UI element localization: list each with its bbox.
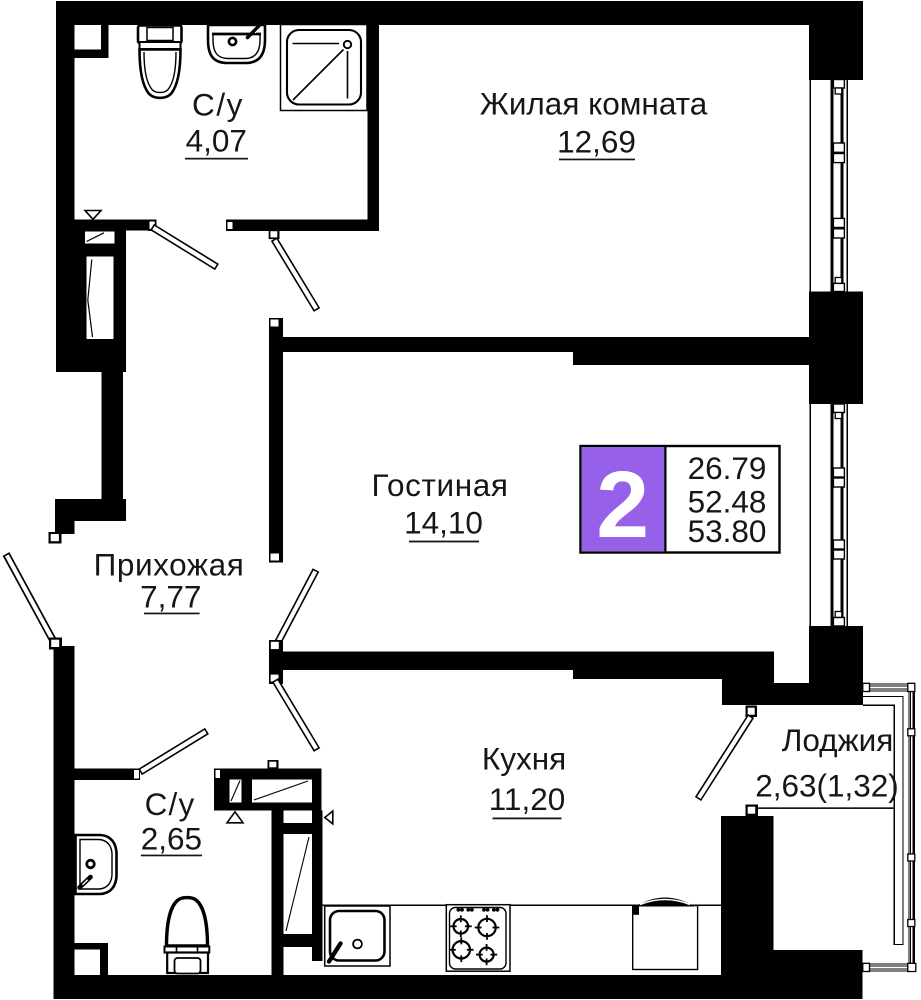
svg-text:4,07: 4,07 (186, 123, 247, 159)
svg-text:С/у: С/у (145, 786, 196, 822)
svg-text:2: 2 (596, 452, 649, 558)
svg-text:2,65: 2,65 (141, 821, 202, 857)
svg-text:53.80: 53.80 (688, 513, 767, 549)
svg-text:Прихожая: Прихожая (94, 547, 245, 583)
svg-text:Кухня: Кухня (482, 741, 566, 777)
svg-text:14,10: 14,10 (404, 505, 483, 541)
svg-text:26.79: 26.79 (688, 450, 767, 486)
svg-text:Гостиная: Гостиная (371, 467, 508, 503)
svg-text:7,77: 7,77 (140, 579, 201, 615)
svg-text:Жилая комната: Жилая комната (480, 86, 708, 122)
svg-text:С/у: С/у (192, 87, 244, 123)
svg-text:2,63(1,32): 2,63(1,32) (755, 768, 899, 804)
svg-text:Лоджия: Лоджия (782, 722, 894, 758)
svg-text:11,20: 11,20 (489, 781, 566, 817)
svg-text:12,69: 12,69 (557, 124, 636, 160)
